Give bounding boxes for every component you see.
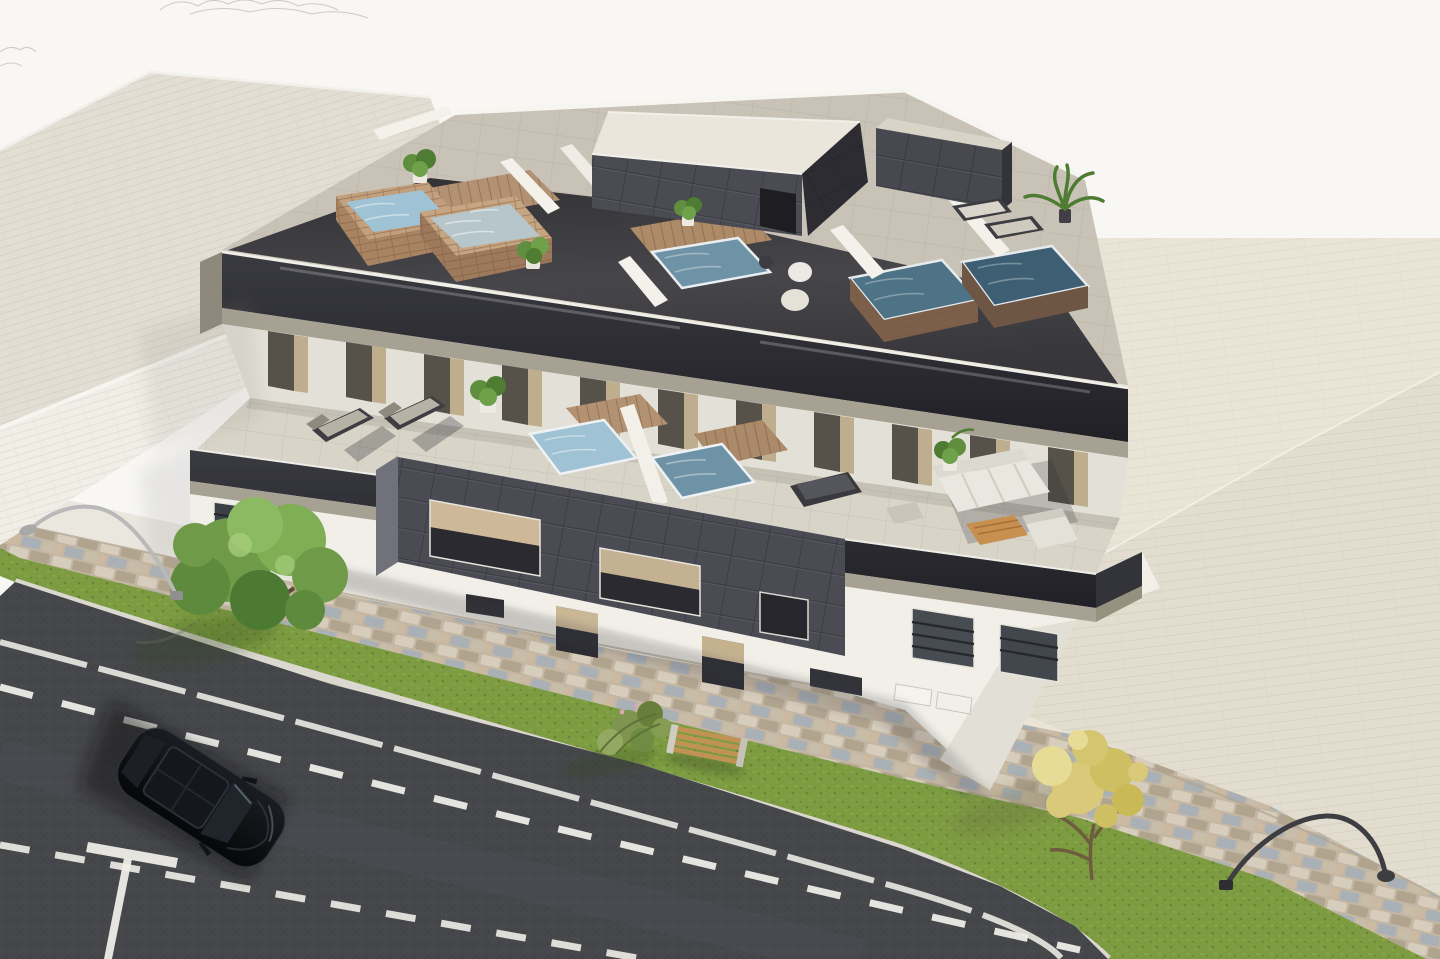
feature-volume-window [760,592,808,640]
side-table [759,255,773,269]
render-canvas [0,0,1440,959]
window-railing-right-1 [912,608,974,668]
lamp-base-dark [1219,880,1233,890]
pouf [781,289,809,311]
stair-box2-side [1002,142,1012,210]
window-railing-right-2 [1000,624,1058,682]
pouf [788,262,812,282]
lamp-head-dark [1377,870,1395,882]
architectural-render [0,0,1440,959]
stair-box-door [760,188,796,234]
feature-volume-side [376,456,398,576]
lamp-base [170,591,183,600]
